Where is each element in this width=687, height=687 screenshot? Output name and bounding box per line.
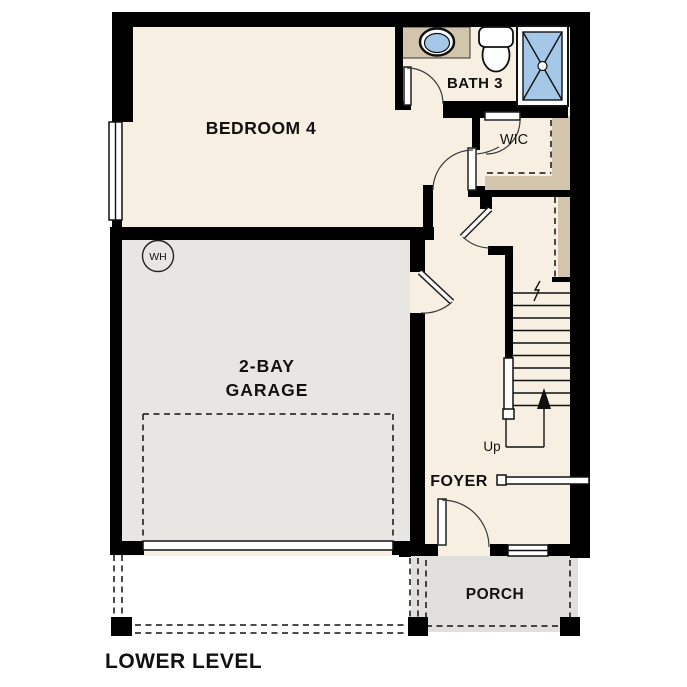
wall-stair-west <box>505 252 513 358</box>
garage-label-line2: GARAGE <box>226 380 309 400</box>
driveway-post-bottom-left <box>111 617 132 636</box>
foyer-label: FOYER <box>430 473 488 490</box>
porch-label: PORCH <box>466 586 524 603</box>
wall-top <box>112 12 590 27</box>
wic-door-leaf <box>485 112 520 120</box>
stair-railing <box>504 358 513 410</box>
wall-bath-south-right <box>443 101 486 118</box>
toilet-tank <box>479 27 513 47</box>
stairs-up-label: Up <box>483 439 500 454</box>
wic-shelf-bottom <box>485 176 570 192</box>
wall-wic-west <box>472 116 480 150</box>
water-heater-label: WH <box>149 251 167 263</box>
porch-post-top-left <box>399 546 411 557</box>
wall-garage-right-upper <box>410 227 425 272</box>
vestibule-door-leaf <box>468 148 476 190</box>
stair-landing-rail <box>501 477 589 484</box>
wall-right <box>570 12 590 558</box>
wall-garage-left <box>110 240 122 542</box>
garage-door <box>143 541 393 550</box>
front-door-leaf <box>438 499 446 545</box>
bedroom4-label: BEDROOM 4 <box>206 118 316 138</box>
floor-plan-drawing: BEDROOM 4 BATH 3 WIC WH 2-BAY GARAGE Up … <box>0 0 687 687</box>
stair-closet-shelf <box>558 197 570 277</box>
wall-wic-north <box>486 101 518 113</box>
wall-vestibule-stub <box>423 185 433 240</box>
shower-drain <box>538 62 547 71</box>
wic-label: WIC <box>500 132 528 148</box>
porch-post-bottom-left <box>408 617 428 636</box>
floor-plan-page: BEDROOM 4 BATH 3 WIC WH 2-BAY GARAGE Up … <box>0 0 687 687</box>
wall-bedroom-south <box>110 227 434 240</box>
porch-post-bottom-right <box>560 617 580 636</box>
wall-left-upper <box>112 12 133 122</box>
garage-label-line1: 2-BAY <box>239 356 295 376</box>
wall-foyer-bottom-right <box>548 544 590 556</box>
wall-bath-west <box>395 27 403 103</box>
sink-basin <box>425 34 450 53</box>
stair-newel-post <box>503 409 514 419</box>
wall-stair-closet-bottom <box>552 277 570 282</box>
bath3-door-leaf <box>404 67 411 105</box>
wall-foyer-bottom-mid <box>490 544 508 556</box>
stair-landing-newel <box>497 475 506 485</box>
wall-hall-corner-upper <box>480 195 492 209</box>
bath3-label: BATH 3 <box>447 75 503 92</box>
wall-garage-right-lower <box>410 313 425 544</box>
wall-garage-bottom-left <box>110 541 144 555</box>
plan-title: LOWER LEVEL <box>105 650 262 673</box>
